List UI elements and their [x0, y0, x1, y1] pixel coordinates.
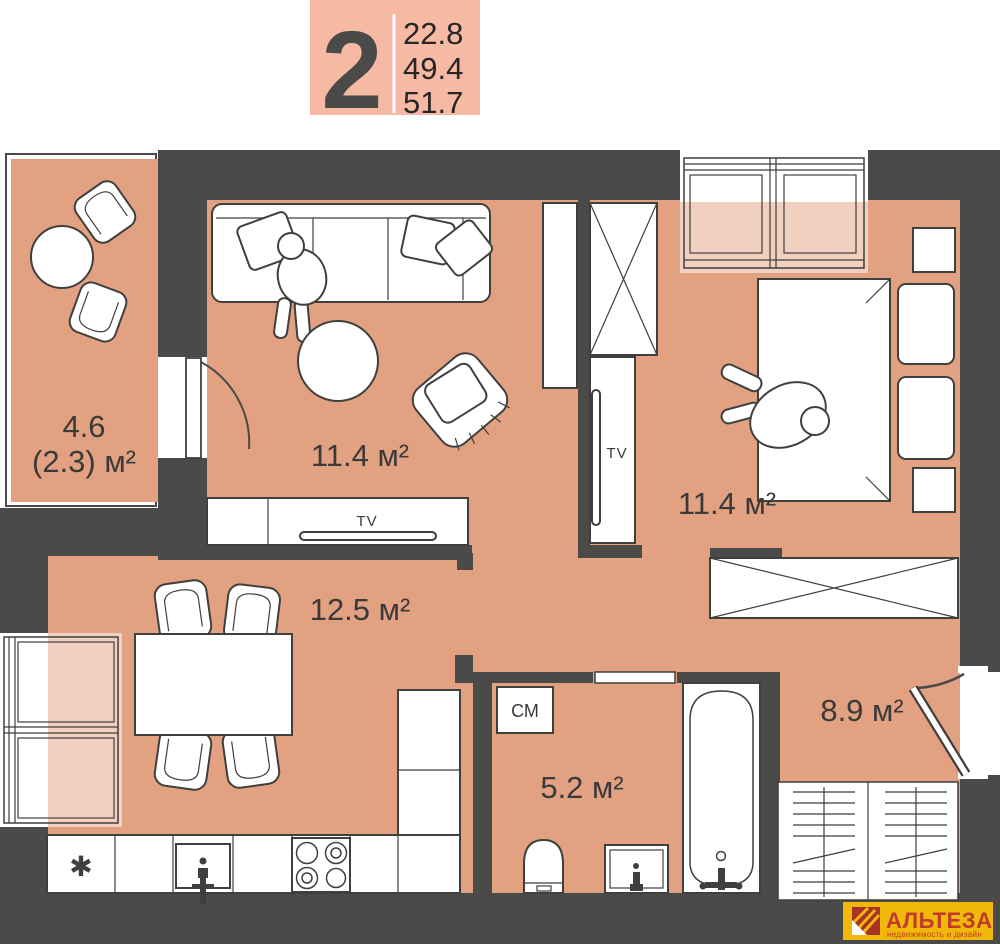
shelf-living: [543, 203, 577, 388]
floor-plan-page: 2 22.8 49.4 51.7: [0, 0, 1000, 944]
wardrobe-bedroom: [590, 203, 657, 355]
bedroom-window: [680, 152, 868, 273]
sofa: [212, 204, 494, 302]
area-living-total: 22.8: [403, 16, 463, 51]
nightstand-bottom: [913, 468, 955, 512]
rooms-count: 2: [321, 9, 382, 132]
balcony-area-label: 4.6: [62, 409, 105, 444]
brand-tagline: недвижимость и дизайн: [887, 930, 982, 939]
tv-stand-living: TV: [207, 498, 468, 545]
tv-icon: [300, 532, 436, 540]
living-room-area-label: 11.4 м²: [311, 438, 409, 473]
toilet: [524, 840, 563, 893]
balcony-table: [31, 226, 93, 288]
dining-table: [135, 634, 292, 735]
brand-logo: АЛЬТЕЗА недвижимость и дизайн: [843, 902, 993, 940]
hallway-area-label: 8.9 м²: [820, 693, 903, 728]
area-total: 51.7: [403, 85, 463, 120]
bathroom-door: [595, 672, 675, 683]
tv-label-living: TV: [356, 513, 377, 530]
bathroom-sink: [605, 845, 668, 893]
balcony-area-reduced-label: (2.3) м²: [32, 444, 136, 479]
hall-wardrobe: [710, 558, 958, 618]
kitchen-area-label: 12.5 м²: [310, 592, 411, 627]
stove: [292, 838, 350, 892]
bedroom-area-label: 11.4 м²: [678, 486, 776, 521]
tv-stand-bedroom: TV: [590, 357, 635, 543]
fridge-icon: ✱: [69, 851, 92, 882]
area-apartment: 49.4: [403, 51, 463, 86]
washing-machine-label: СМ: [511, 701, 539, 721]
nightstand-top: [913, 228, 955, 272]
kitchen-window: [0, 633, 122, 827]
door-jamb-top: [958, 666, 988, 673]
bathroom-area-label: 5.2 м²: [540, 770, 623, 805]
bathtub: [683, 683, 760, 893]
pillow: [898, 377, 954, 459]
floor-plan: 2 22.8 49.4 51.7: [0, 0, 1000, 944]
dining-chair: [153, 727, 213, 792]
brand-logo-icon: [852, 907, 880, 935]
tv-icon: [592, 390, 600, 525]
badge-divider: [393, 14, 396, 113]
tv-label-bedroom: TV: [606, 445, 627, 462]
closet: [778, 782, 958, 900]
coffee-table: [298, 321, 378, 401]
washing-machine: СМ: [497, 687, 553, 733]
pillow: [898, 284, 954, 364]
area-badge: 2 22.8 49.4 51.7: [310, 0, 480, 132]
